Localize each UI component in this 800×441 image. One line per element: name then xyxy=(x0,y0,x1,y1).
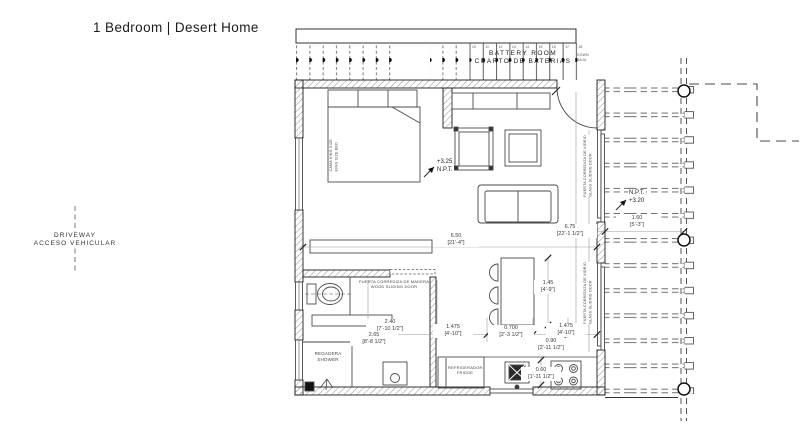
wall-bottom-right xyxy=(533,387,605,395)
dimension-1475-right: 1.475[4'-10"] xyxy=(546,323,586,337)
sliding-door-panel-1 xyxy=(598,130,602,218)
battery-cell-number: 11 xyxy=(485,45,489,49)
glass-sliding-door-label-upper: PUERTA CORREDIZA DE VIDRIOGLASS SLIDING … xyxy=(583,135,594,197)
battery-dots xyxy=(296,56,395,64)
wall-top xyxy=(295,80,557,88)
door-swing-arc xyxy=(557,88,597,128)
column-middle xyxy=(678,234,690,246)
side-table xyxy=(505,130,541,166)
battery-cell-number: 10 xyxy=(472,45,476,49)
console-living xyxy=(452,93,550,109)
level-markers xyxy=(424,167,626,210)
roof-beams xyxy=(605,86,684,394)
shower-drain xyxy=(305,382,314,391)
dining-chair-1 xyxy=(489,264,498,281)
battery-room-outline xyxy=(296,29,576,43)
entry-door xyxy=(552,87,597,128)
bed xyxy=(328,107,420,182)
wall-stub-bedroom xyxy=(443,88,452,128)
dining-chair-3 xyxy=(490,309,499,326)
wall-bathroom-top xyxy=(303,270,390,277)
battery-cell-number: 14 xyxy=(525,45,529,49)
dimension-1475-left: 1.475[4'-10"] xyxy=(433,324,473,338)
battery-cell-number: 17 xyxy=(565,45,569,49)
battery-cell-number: 15 xyxy=(539,45,543,49)
dining-chair-2 xyxy=(490,287,499,304)
property-line xyxy=(689,84,799,141)
battery-cell-number: 18 xyxy=(578,45,582,49)
battery-room-note: DOWN BAJA xyxy=(577,53,589,62)
dimension-0700: 0.700[2'-3 1/2"] xyxy=(488,325,534,339)
dimension-145: 1.45[4'-9"] xyxy=(534,280,562,294)
dimension-060: 0.60[1'-11 1/2"] xyxy=(521,367,561,381)
dimension-675: 6.75[22'-1 1/2"] xyxy=(543,224,597,238)
closet xyxy=(328,90,417,107)
sliding-door-panel-4 xyxy=(601,267,605,350)
dining-table xyxy=(501,258,534,325)
bed-fold xyxy=(392,107,420,123)
sliding-door-panel-2 xyxy=(601,134,605,222)
column-bottom xyxy=(678,383,690,395)
kitchen-window-sill xyxy=(490,389,533,393)
dimension-090: 0.90[2'-11 1/2"] xyxy=(528,338,574,352)
battery-cell-number: 13 xyxy=(512,45,516,49)
wall-left-a xyxy=(295,80,303,138)
battery-cell-number: 16 xyxy=(552,45,556,49)
driveway-label-en: DRIVEWAY xyxy=(8,232,142,240)
sink-faucet xyxy=(515,385,519,389)
wall-left-b xyxy=(295,210,303,282)
bed-label: CAMA KING SIZEKING SIZE BED xyxy=(329,139,340,171)
shower-label: REGADERASHOWER xyxy=(306,351,350,363)
console-bedroom xyxy=(310,240,432,253)
level-terrace: N.P.T. +3.20 xyxy=(628,190,646,205)
glass-sliding-door-label-lower: PUERTA CORREDIZA DE VIDRIOGLASS SLIDING … xyxy=(583,262,594,324)
column-top xyxy=(678,85,690,97)
terrace-structure xyxy=(605,58,799,421)
page-title: 1 Bedroom | Desert Home xyxy=(93,20,259,36)
battery-room-label-es: CUARTO DE BATERIAS xyxy=(448,58,598,66)
dimension-160: 1.60[5'-3"] xyxy=(616,215,658,229)
driveway-label: DRIVEWAY ACCESO VEHICULAR xyxy=(8,232,142,248)
battery-room-label: BATTERY ROOM CUARTO DE BATERIAS xyxy=(448,50,598,66)
armchair-table xyxy=(455,128,493,170)
floor-plan-linework xyxy=(0,0,800,441)
wood-sliding-door-label: PUERTA CORREDIZA DE MADERAWOOD SLIDING D… xyxy=(350,279,438,289)
floor-plan-canvas: 1 Bedroom | Desert Home DRIVEWAY ACCESO … xyxy=(0,0,800,441)
level-living: +3.25 N.P.T. xyxy=(436,159,454,174)
dimension-650: 6.50[21'-4"] xyxy=(433,233,479,247)
bathroom-sliding-door xyxy=(390,270,435,275)
wall-right-a xyxy=(597,80,605,130)
fridge-label: REFRIGERADORFRIDGE xyxy=(448,365,482,375)
battery-cell-number: 12 xyxy=(499,45,503,49)
dimension-240: 2.40[7'-10 1/2"] xyxy=(366,319,414,333)
wall-left-c xyxy=(295,310,303,340)
battery-room-label-en: BATTERY ROOM xyxy=(448,50,598,58)
driveway-label-es: ACCESO VEHICULAR xyxy=(8,240,142,248)
wall-right-b xyxy=(597,222,605,263)
dimension-265: 2.65[8'-8 1/2"] xyxy=(350,332,398,346)
